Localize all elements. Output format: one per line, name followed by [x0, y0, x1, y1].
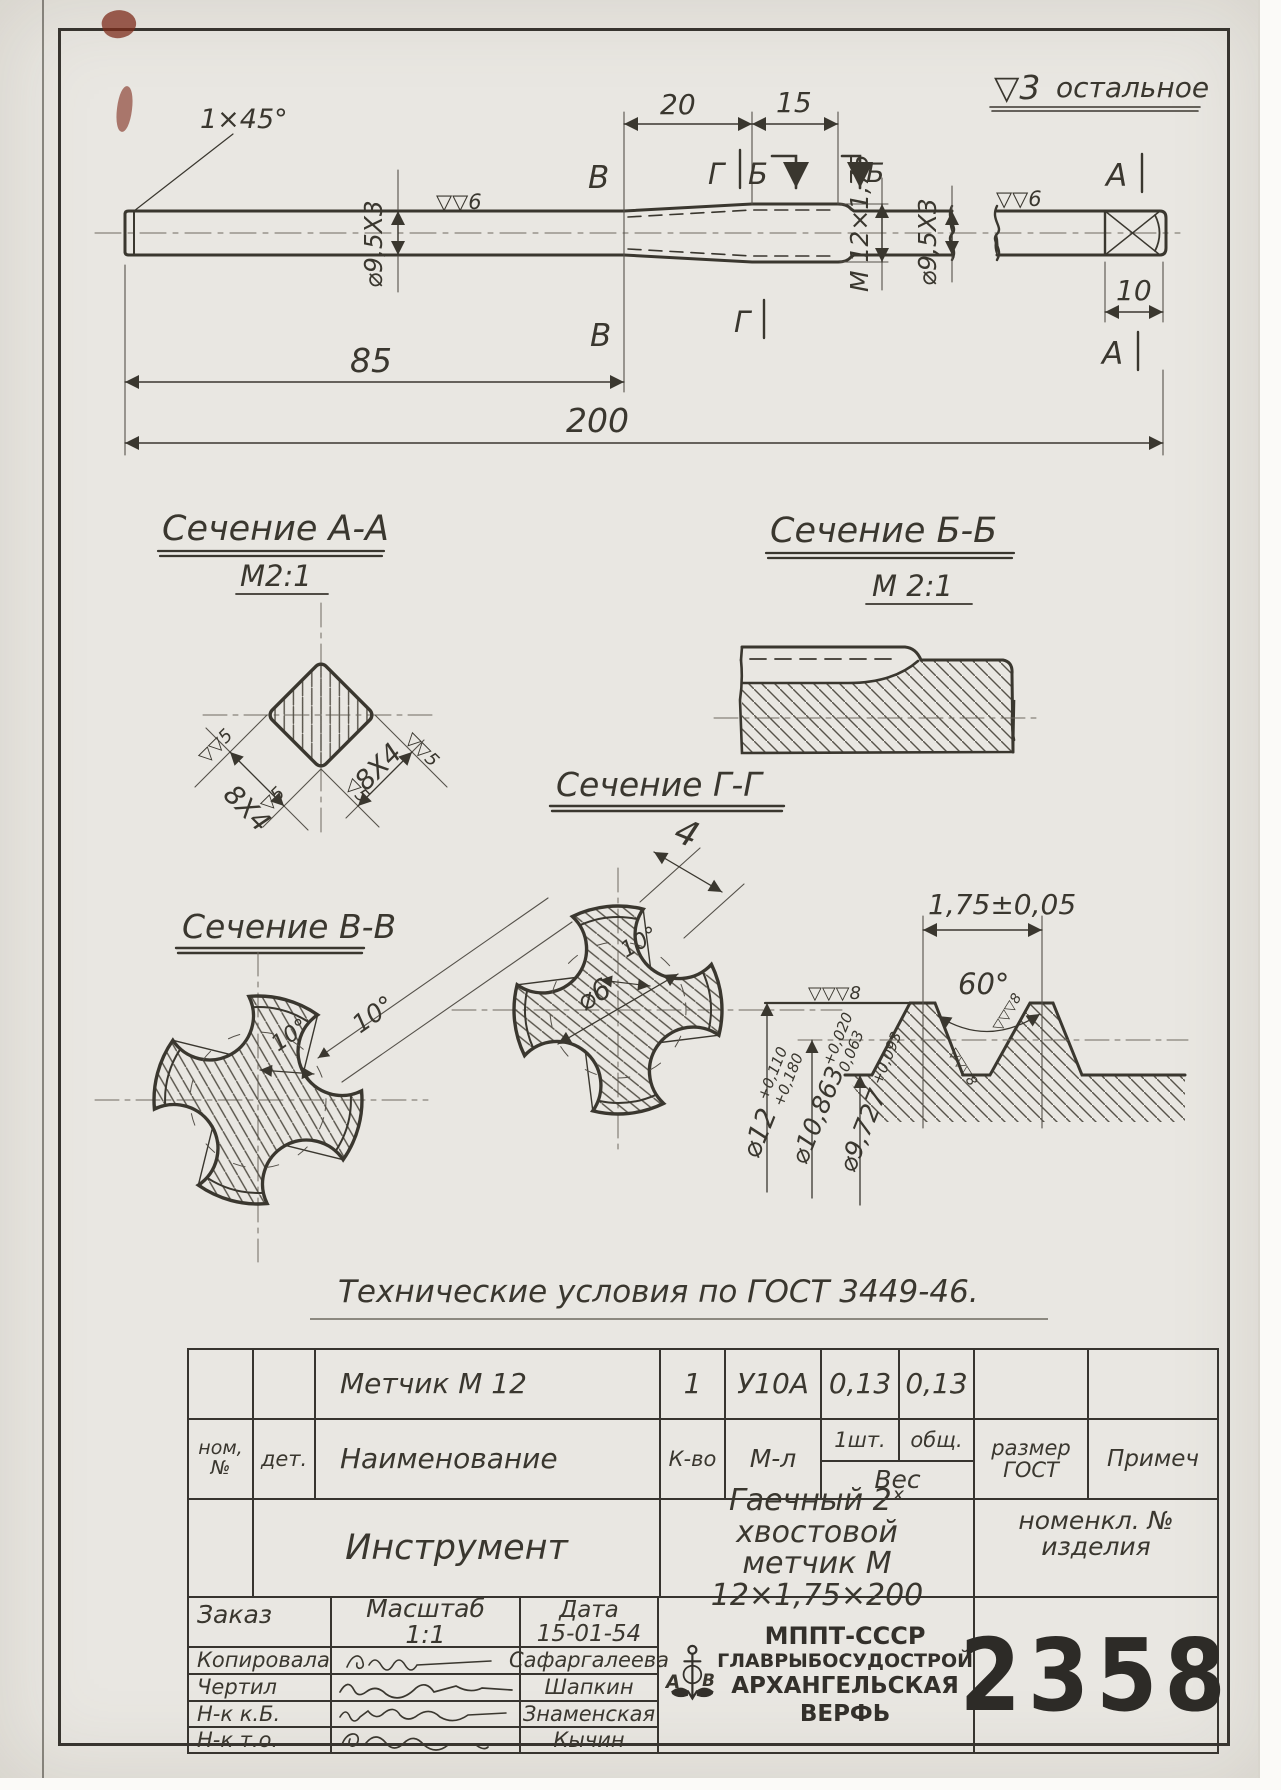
finish-all-mark: ▽3	[994, 68, 1040, 107]
tb-h-det: дет.	[252, 1418, 316, 1500]
tb-role-drawn: Чертил	[187, 1673, 332, 1702]
tb-h-note: Примеч	[1087, 1418, 1219, 1500]
signature-nkto	[336, 1729, 516, 1751]
tb-r1-nom	[187, 1348, 254, 1420]
tb-h-size: размерГОСТ	[973, 1418, 1089, 1500]
thread-root-dashed	[628, 210, 836, 217]
tb-h-name: Наименование	[314, 1418, 661, 1500]
dim-pitch: 1,75±0,05	[928, 888, 1076, 921]
tb-date: Дата15-01-54	[519, 1596, 659, 1648]
tb-name-nkkb: Знаменская	[519, 1700, 659, 1728]
section-v-bottom: В	[590, 318, 611, 354]
tb-drawing-number: 2358	[973, 1596, 1219, 1754]
tb-item-weight-total: 0,13	[898, 1348, 975, 1420]
thread-size-label: М 12×1,75	[845, 154, 874, 292]
finish-mark-crest: ▽▽▽8	[808, 983, 861, 1004]
finish-mark-right: ▽▽6	[996, 187, 1042, 211]
scan-background-bottom	[0, 1778, 1281, 1790]
org-line-2: ГЛАВРЫБОСУДОСТРОЙ	[717, 1650, 973, 1673]
tech-conditions: Технические условия по ГОСТ 3449-46.	[310, 1274, 1048, 1319]
signature-drawn	[336, 1676, 516, 1700]
finish-mark-left: ▽▽6	[436, 190, 482, 214]
dim-major-dia: ⌀12	[736, 1104, 784, 1163]
tb-item-weight-one: 0,13	[820, 1348, 900, 1420]
tb-order: Заказ	[187, 1596, 332, 1648]
dim-thread-angle: 60°	[958, 967, 1009, 1001]
tb-item-qty: 1	[659, 1348, 726, 1420]
tb-h-nom: ном,№	[187, 1418, 254, 1500]
section-b-title: Сечение Б-Б	[770, 511, 997, 551]
tb-h-one: 1шт.	[820, 1418, 900, 1462]
finish-all-underline	[990, 107, 1200, 111]
tb-h-total: общ.	[898, 1418, 975, 1462]
section-a-a: Сечение А-А М2:1 8Х4 8Х4 ▽▽5	[158, 509, 447, 838]
section-a-scale: М2:1	[240, 559, 312, 593]
section-b-arrow1	[772, 156, 796, 188]
tb-scale: Масштаб1:1	[330, 1596, 521, 1648]
dim-85: 85	[350, 341, 392, 380]
finish-mark-aa1: ▽▽5	[195, 725, 238, 768]
section-b-top: Б	[748, 157, 768, 191]
tb-sign-copied	[330, 1646, 521, 1675]
section-v-v: Сечение В-В 10° 10°	[95, 898, 572, 1262]
section-b-b: Сечение Б-Б М 2:1	[714, 511, 1042, 753]
tb-role-nkkb: Н-к к.Б.	[187, 1700, 332, 1728]
tb-r3-empty	[187, 1498, 254, 1598]
chamfer-leader	[134, 134, 233, 211]
shank-dia-left: ⌀9,5Х3	[359, 200, 388, 288]
tb-nomenclature: номенкл. №изделия	[973, 1498, 1219, 1598]
section-g-title: Сечение Г-Г	[556, 765, 764, 804]
signature-nkkb	[336, 1703, 516, 1725]
tb-item-material: У10А	[724, 1348, 822, 1420]
tb-sign-nkkb	[330, 1700, 521, 1728]
section-g-top: Г	[708, 157, 727, 191]
logo-letter-a: А	[665, 1672, 680, 1693]
section-g-bottom: Г	[734, 305, 753, 339]
dim-flute-width: 4	[669, 811, 705, 856]
tb-sign-drawn	[330, 1673, 521, 1702]
section-v-top: В	[588, 160, 609, 196]
tb-r1-note	[1087, 1348, 1219, 1420]
tb-name-drawn: Шапкин	[519, 1673, 659, 1702]
finish-all-word: остальное	[1056, 71, 1209, 104]
thread-profile: 1,75±0,05 60° ▽▽▽8 ▽▽▽8 ▽▽▽8 ⌀12 +0,110 …	[732, 888, 1188, 1205]
tap-body-outline	[125, 204, 952, 214]
shank-dia-right: ⌀9,5Х3	[913, 198, 942, 286]
dim-200: 200	[566, 401, 629, 440]
blueprint-page: 1×45° ▽▽6 ▽▽6 ▽3 остальное В В Г Б Б Г А…	[0, 0, 1281, 1790]
angle-vv-outer: 10°	[347, 990, 400, 1039]
tb-role-copied: Копировала	[187, 1646, 332, 1675]
org-line-3: АРХАНГЕЛЬСКАЯ	[717, 1673, 973, 1701]
top-view: 1×45° ▽▽6 ▽▽6 ▽3 остальное В В Г Б Б Г А…	[95, 68, 1209, 455]
section-a-top: А	[1104, 158, 1127, 194]
org-line-1: МППТ-СССР	[717, 1622, 973, 1651]
tb-sign-nkto	[330, 1726, 521, 1754]
org-line-4: ВЕРФЬ	[717, 1701, 973, 1729]
tb-name-nkto: Кычин	[519, 1726, 659, 1754]
section-a-title: Сечение А-А	[162, 509, 389, 549]
tb-organization: А В МППТ-СССР ГЛАВРЫБОСУДОСТРОЙ АРХАНГЕЛ…	[657, 1596, 975, 1754]
tb-r1-det	[252, 1348, 316, 1420]
section-b-scale: М 2:1	[872, 569, 953, 603]
dim-10: 10	[1116, 274, 1152, 307]
finish-mark-aa2: ▽▽5	[400, 729, 443, 772]
tb-description: Гаечный 2ˣ хвостовойметчик М 12×1,75×200	[659, 1498, 975, 1598]
org-logo: А В	[665, 1600, 717, 1750]
section-v-title: Сечение В-В	[182, 907, 396, 946]
tb-name-copied: Сафаргалеева	[519, 1646, 659, 1675]
tb-role-nkto: Н-к т.о.	[187, 1726, 332, 1754]
scan-background-right	[1258, 0, 1281, 1790]
dim-minor-dia: ⌀9,727	[833, 1085, 892, 1176]
logo-letter-v: В	[702, 1670, 715, 1690]
dim-15: 15	[776, 86, 812, 119]
tb-group: Инструмент	[252, 1498, 661, 1598]
dim-20: 20	[660, 88, 696, 121]
chamfer-label: 1×45°	[200, 104, 288, 135]
tb-r1-size	[973, 1348, 1089, 1420]
drawing-number: 2358	[959, 1623, 1232, 1728]
tech-conditions-text: Технические условия по ГОСТ 3449-46.	[338, 1274, 979, 1310]
tb-item-name: Метчик М 12	[314, 1348, 661, 1420]
signature-copied	[341, 1649, 511, 1673]
section-a-bottom: А	[1100, 336, 1123, 372]
